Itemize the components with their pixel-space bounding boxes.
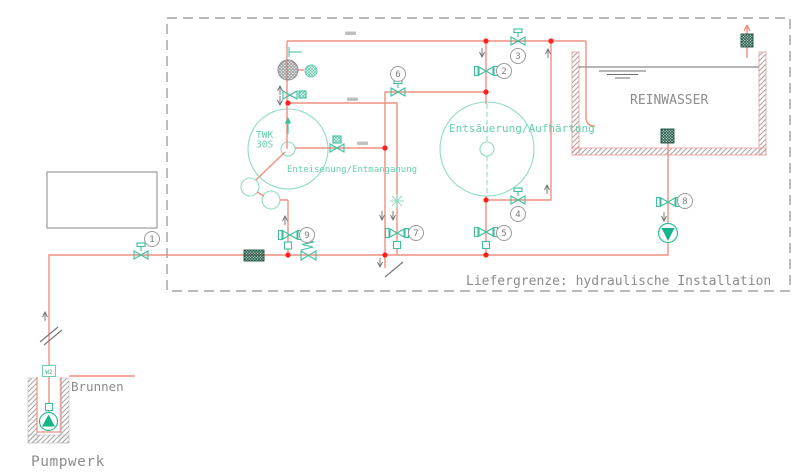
fitting-square-icon <box>46 404 53 411</box>
valve-4-icon <box>511 188 525 204</box>
tank-wall-bottom <box>572 148 766 155</box>
svg-text:2: 2 <box>501 67 506 77</box>
probe-icon <box>289 47 302 57</box>
valve-tag-3: 3 <box>511 49 526 64</box>
suction-strainer-icon <box>661 129 674 143</box>
svg-text:8: 8 <box>682 197 687 207</box>
building-outline <box>47 172 157 228</box>
distributor-arrow-icon <box>285 117 291 134</box>
clean-water-pump-icon <box>659 224 678 243</box>
pipe-break-icons <box>40 262 403 345</box>
well-pump-icon <box>40 413 58 431</box>
pid-diagram: W2 1 2 3 4 5 6 7 <box>0 0 800 476</box>
svg-text:6: 6 <box>395 70 400 80</box>
valve-tag-2: 2 <box>497 64 512 79</box>
svg-text:5: 5 <box>501 229 506 239</box>
valve-3-icon <box>511 29 525 45</box>
valve-tag-8: 8 <box>678 194 693 209</box>
reactor-tank-circle <box>440 102 534 196</box>
filter-tank-tag-line2: 30S <box>256 140 273 151</box>
valve-tag-9: 9 <box>300 228 315 243</box>
water-meter-box: W2 <box>43 366 56 377</box>
pipe-reactor-return <box>486 41 551 200</box>
svg-text:3: 3 <box>515 52 520 62</box>
reactor-process-label: Entsäuerung/Aufhärtung <box>449 122 595 135</box>
air-inlet-icon <box>305 65 317 77</box>
delivery-boundary-label: Liefergrenze: hydraulische Installation <box>466 274 771 289</box>
water-meter-label: W2 <box>45 369 53 376</box>
vent-screen-icon <box>741 34 753 47</box>
valve-tag-7: 7 <box>409 226 424 241</box>
pid-diagram-canvas: W2 1 2 3 4 5 6 7 <box>0 0 800 476</box>
valve-1-icon <box>134 243 148 259</box>
valve-tag-4: 4 <box>511 207 526 222</box>
valve-tag-5: 5 <box>497 226 512 241</box>
fitting-square-icon <box>483 242 490 249</box>
valve-9-icon <box>279 231 302 240</box>
fitting-square-icon <box>394 242 401 249</box>
valve-tag-1: 1 <box>145 232 160 247</box>
pipe-tank-inlet <box>586 41 595 126</box>
valve-6-icon <box>391 80 405 96</box>
pipe-size-labels <box>345 32 368 146</box>
tank-wall-left <box>572 52 579 155</box>
valve-tags: 1 2 3 4 5 6 7 8 9 <box>145 49 693 247</box>
well-label: Brunnen <box>71 379 124 394</box>
pipe-blower-link <box>256 152 288 255</box>
sampling-star-icon <box>390 194 404 208</box>
fitting-square-icon <box>285 242 292 249</box>
svg-text:7: 7 <box>413 229 418 239</box>
tank-wall-right <box>759 52 766 155</box>
svg-text:1: 1 <box>149 235 154 245</box>
water-level-icon <box>579 67 759 78</box>
svg-text:9: 9 <box>304 231 309 241</box>
clean-water-tank-label: REINWASSER <box>630 93 708 108</box>
filter-process-label: Enteisenung/Entmanganung <box>287 165 417 175</box>
svg-text:4: 4 <box>515 210 520 220</box>
inline-filter-icon <box>244 250 264 261</box>
filter-outlet-valve-icon <box>330 136 344 152</box>
station-label: Pumpwerk <box>31 454 105 470</box>
valve-tag-6: 6 <box>391 67 406 82</box>
aeration-filter-icon <box>278 60 298 80</box>
